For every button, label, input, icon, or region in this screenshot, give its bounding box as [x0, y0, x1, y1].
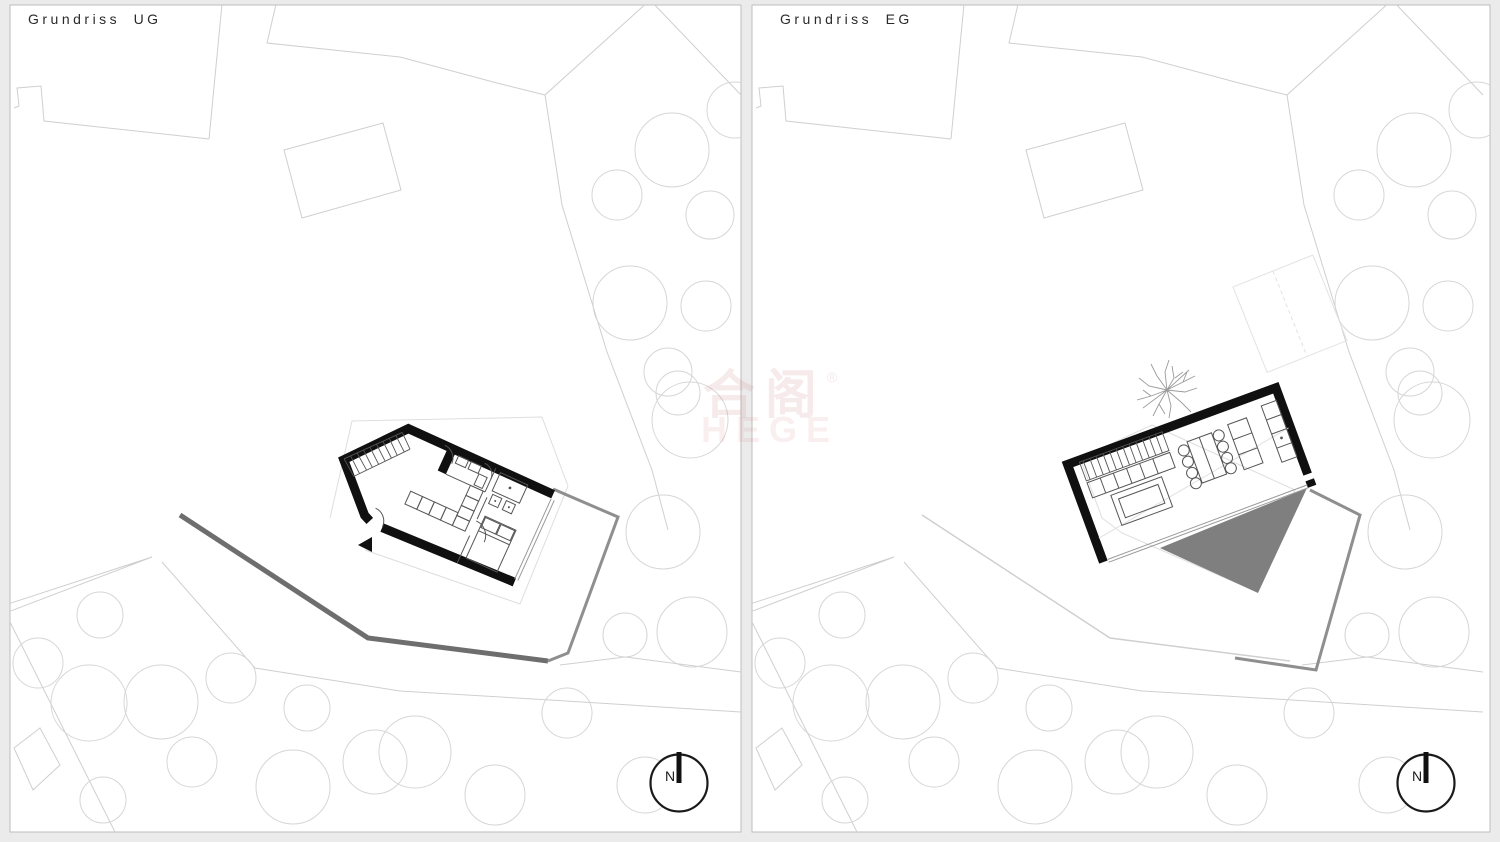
eg-wall-cap: [1310, 480, 1312, 487]
panel-title-eg: Grundriss EG: [780, 11, 913, 27]
panel-ug: N: [5, 0, 763, 842]
north-label: N: [665, 768, 675, 784]
floor-plan-sheet: N: [0, 0, 1500, 842]
panel-title-ug: Grundriss UG: [28, 11, 162, 27]
north-label: N: [1412, 768, 1422, 784]
panel-eg: N: [747, 0, 1500, 842]
